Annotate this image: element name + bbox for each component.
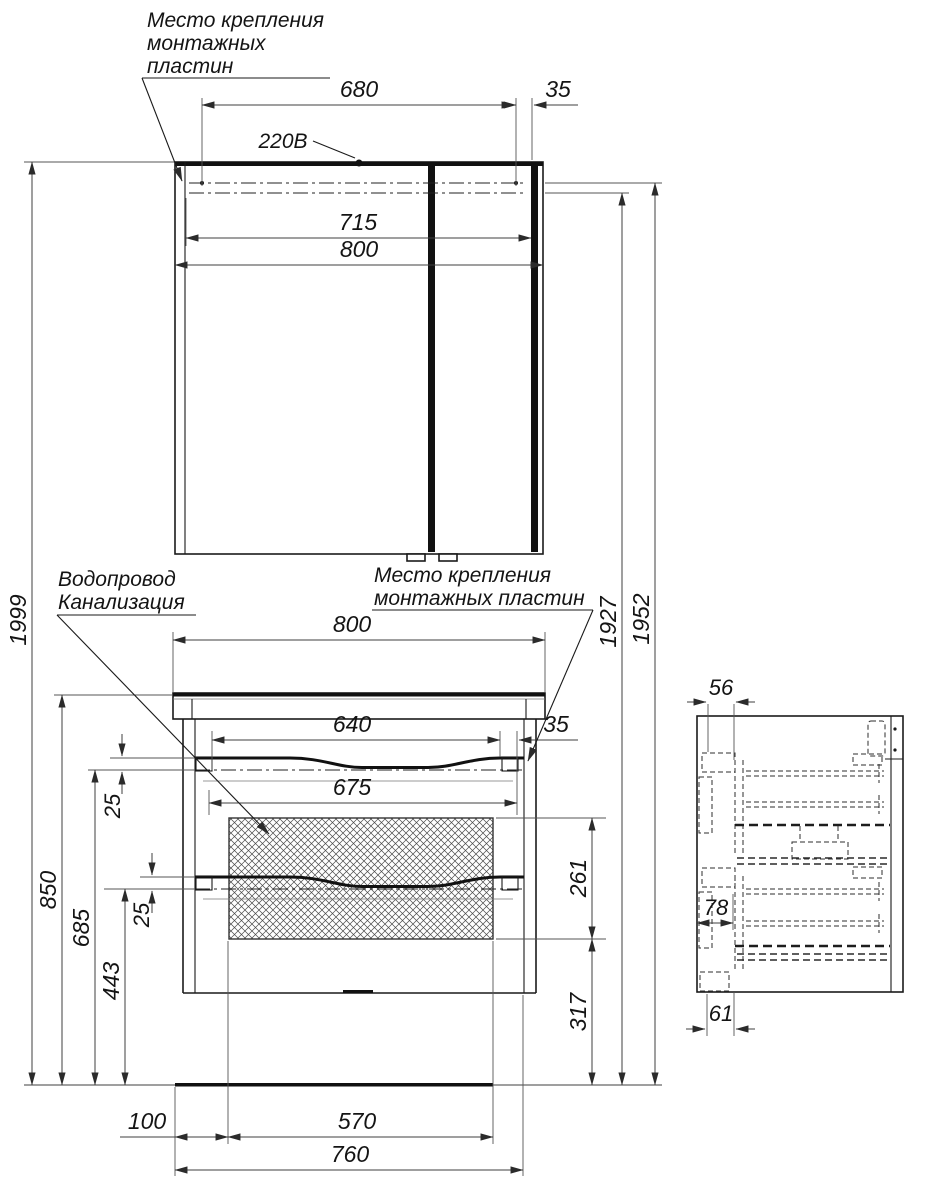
label-power-220v: 220В: [257, 130, 307, 153]
mirror-cabinet-dimensions: 680 35 715 800: [175, 76, 578, 265]
dim-vanity-640: 640: [333, 711, 372, 737]
labels-and-leaders: Место крепления монтажных пластин 220В В…: [57, 9, 593, 834]
label-mounting-plates-mid-line2: монтажных пластин: [374, 587, 585, 610]
dim-plate2-floor-443: 443: [98, 962, 124, 1001]
washbasin-top-edge: [173, 693, 545, 697]
bathroom-furniture-drawing: 680 35 715 800 1999 1927 1952: [0, 0, 931, 1200]
label-mounting-plates-top-line3: пластин: [147, 55, 234, 78]
power-connection-point: [356, 160, 363, 167]
mirror-right-stile: [531, 166, 538, 552]
label-mounting-plates-top-line1: Место крепления: [147, 9, 324, 32]
dim-span-570: 570: [338, 1108, 377, 1134]
drawer1-front-top: [195, 758, 524, 768]
dim-body-760: 760: [331, 1141, 370, 1167]
label-plumbing-line1: Водопровод: [58, 568, 176, 591]
side-siphon-hidden: [792, 842, 848, 859]
dim-vanity-35: 35: [543, 711, 569, 737]
dim-height-1952: 1952: [628, 593, 654, 644]
dim-mirror-800: 800: [340, 236, 379, 262]
dim-side-61: 61: [709, 1001, 733, 1026]
dim-side-78: 78: [704, 895, 729, 920]
side-mount-plate-lower: [702, 868, 735, 887]
dim-height-1927: 1927: [595, 595, 621, 647]
mirror-center-divider: [428, 166, 435, 552]
dim-vanity-800: 800: [333, 611, 372, 637]
mirror-door-handle-left: [407, 554, 425, 561]
dim-inlet-100: 100: [128, 1108, 167, 1134]
side-mount-plate-upper: [702, 753, 735, 772]
vanity-side-view: [697, 716, 903, 992]
dim-vanity-675: 675: [333, 774, 372, 800]
dim-mirror-680: 680: [340, 76, 379, 102]
dim-zone-floor-317: 317: [565, 992, 591, 1032]
dim-drawer1-25: 25: [100, 793, 125, 819]
dim-plate1-floor-685: 685: [68, 909, 94, 948]
label-mounting-plates-top-line2: монтажных: [147, 32, 267, 55]
dim-mirror-35: 35: [545, 76, 571, 102]
dim-mirror-715: 715: [339, 209, 378, 235]
side-view-outline: [697, 716, 903, 992]
dim-vanity-height-850: 850: [35, 871, 61, 910]
dim-total-height-1999: 1999: [5, 594, 31, 645]
technical-drawing-page: 680 35 715 800 1999 1927 1952: [0, 0, 931, 1200]
label-plumbing-line2: Канализация: [58, 591, 185, 614]
dim-drawer2-25: 25: [129, 902, 154, 928]
dim-zone-261: 261: [565, 859, 591, 898]
dim-side-56: 56: [709, 675, 734, 700]
mirror-door-handle-right: [439, 554, 457, 561]
floor-contact-line: [175, 1083, 493, 1087]
label-mounting-plates-mid-line1: Место крепления: [374, 564, 551, 587]
